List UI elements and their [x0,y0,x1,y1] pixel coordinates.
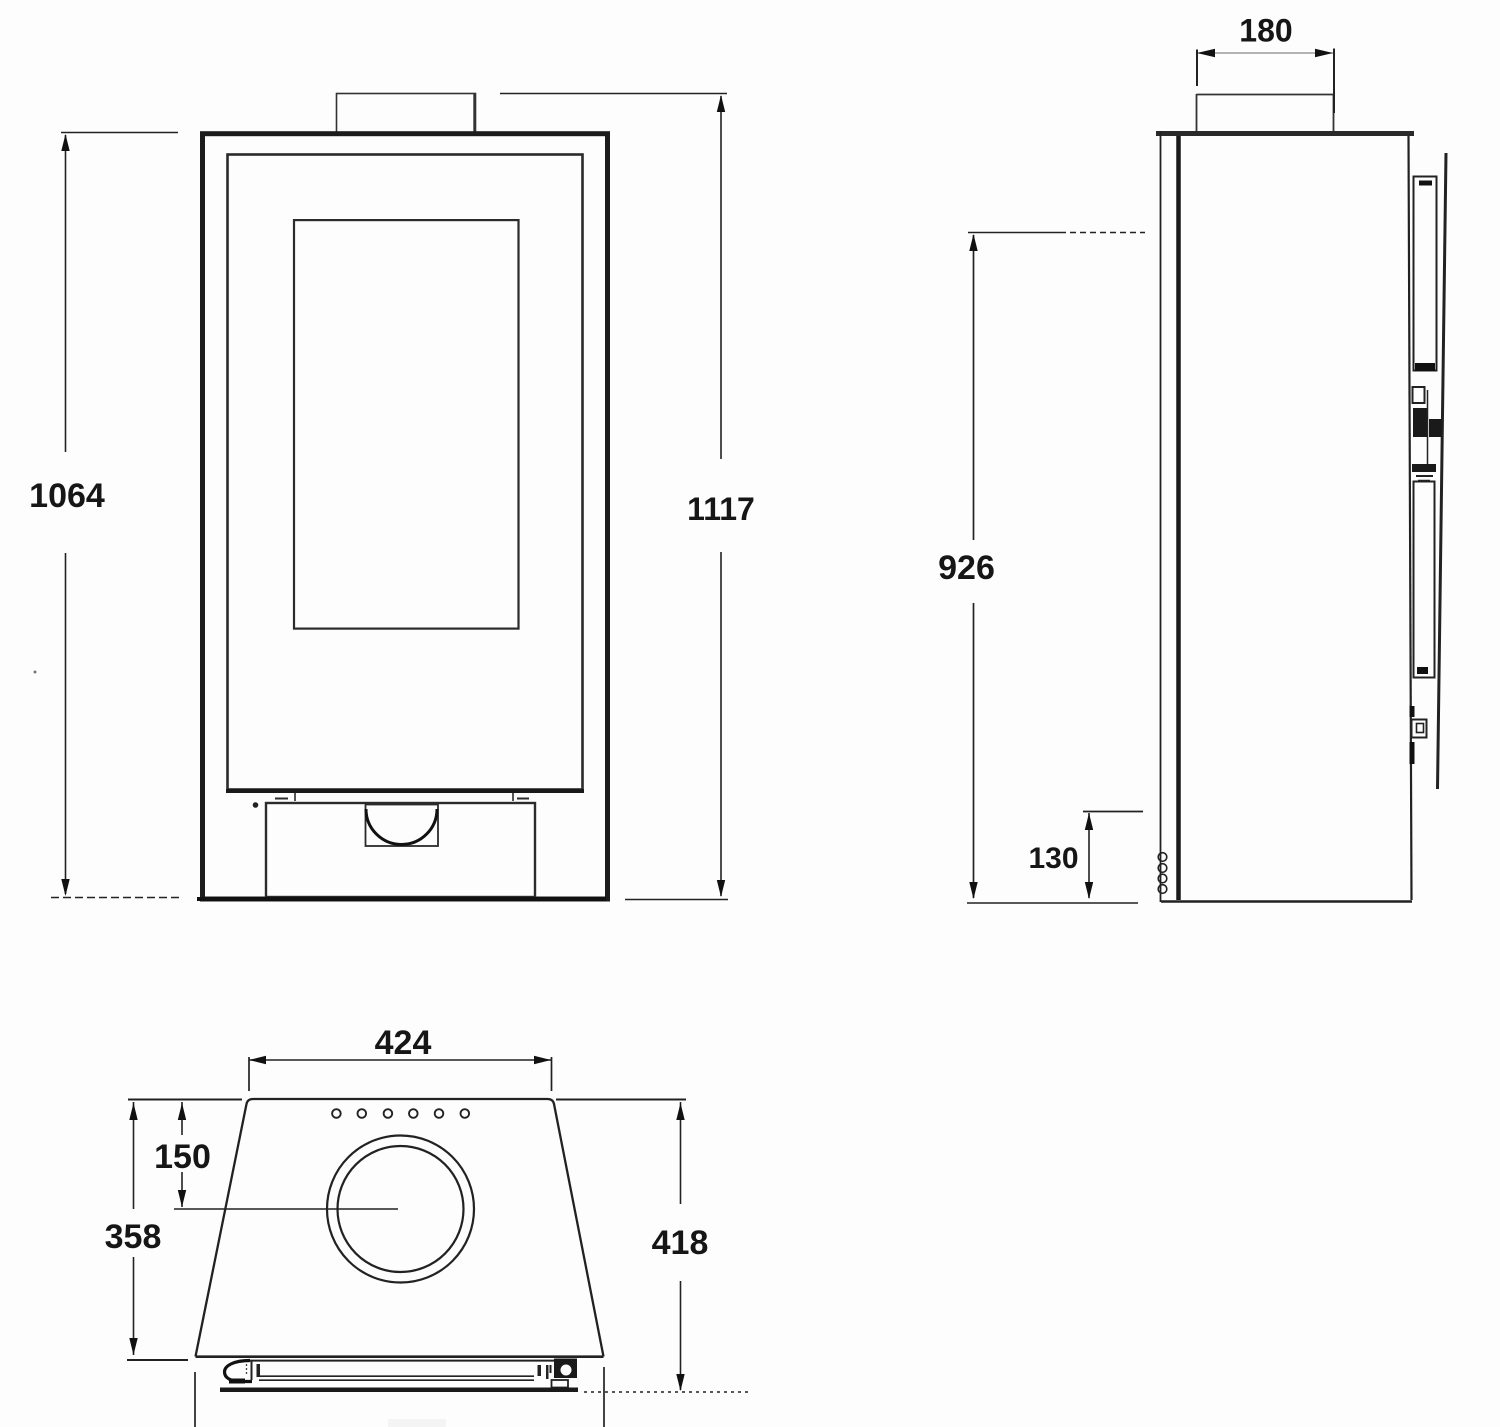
svg-text:418: 418 [652,1224,709,1262]
svg-text:150: 150 [154,1138,211,1176]
svg-text:926: 926 [938,549,995,587]
svg-text:358: 358 [105,1218,162,1256]
svg-text:424: 424 [375,1024,432,1062]
svg-text:180: 180 [1239,13,1292,49]
svg-text:1117: 1117 [687,491,755,527]
svg-text:130: 130 [1028,842,1078,875]
svg-text:1064: 1064 [29,477,105,515]
